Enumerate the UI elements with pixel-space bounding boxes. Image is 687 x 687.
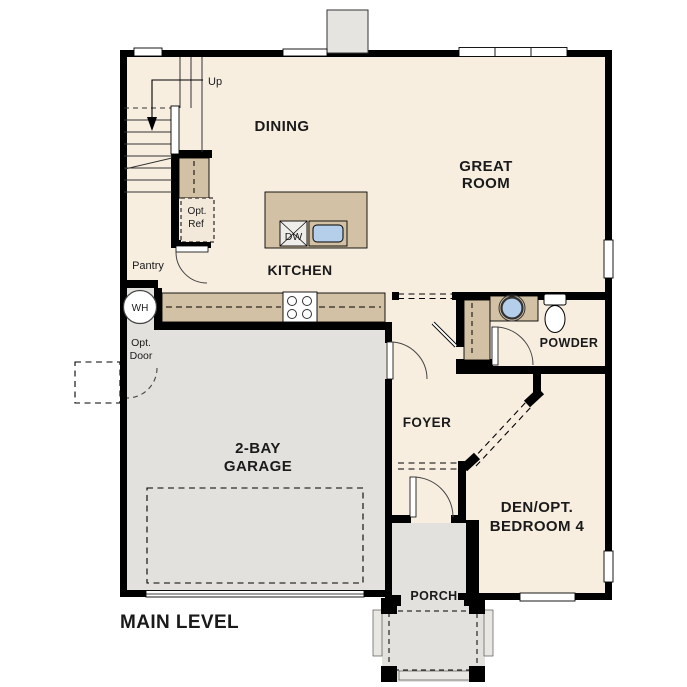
garage-entry-door-leaf	[387, 342, 393, 379]
stove	[283, 292, 317, 322]
porch-post	[469, 598, 485, 614]
den-floor	[460, 370, 610, 598]
label-great-room-2: ROOM	[462, 175, 510, 192]
label-dishwasher: DW	[285, 231, 303, 243]
wall-den-left	[458, 461, 466, 523]
window-dining	[283, 49, 327, 56]
label-opt-ref-2: Ref	[188, 219, 204, 230]
window-top-left	[134, 48, 162, 56]
window-den-right	[604, 551, 613, 582]
label-pantry: Pantry	[132, 260, 164, 272]
porch-step-left	[373, 610, 382, 656]
label-garage-2: GARAGE	[224, 458, 292, 475]
powder-door-leaf	[492, 327, 498, 365]
coat-closet	[464, 300, 490, 360]
fireplace-chimney	[327, 10, 368, 53]
porch-step-bottom	[399, 671, 472, 680]
porch-post	[381, 598, 397, 614]
floorplan-svg: DINING GREAT ROOM KITCHEN Pantry FOYER P…	[0, 0, 687, 687]
wall-garage-right-upper	[385, 326, 392, 343]
toilet-tank	[544, 294, 566, 305]
label-den-1: DEN/OPT.	[501, 499, 573, 516]
toilet-bowl	[545, 306, 565, 333]
label-opt-door-2: Door	[130, 350, 153, 362]
window-den-bottom	[520, 593, 575, 601]
stair-rail	[171, 106, 179, 154]
powder-sink	[502, 298, 523, 319]
label-main-level: MAIN LEVEL	[120, 612, 239, 633]
label-den-2: BEDROOM 4	[490, 518, 585, 535]
wall-hall-stub	[392, 292, 399, 300]
label-stairs-up: Up	[208, 76, 222, 88]
porch-step-right	[484, 610, 493, 656]
kitchen-sink	[313, 225, 343, 242]
front-door-leaf	[410, 477, 416, 517]
pantry-door-leaf	[176, 246, 208, 252]
label-garage-1: 2-BAY	[235, 440, 281, 457]
wall-kitchen-south	[154, 322, 392, 330]
wall-stair-cabinet	[171, 152, 179, 248]
label-foyer: FOYER	[403, 415, 452, 430]
wall-garage-right-lower	[385, 379, 392, 597]
optional-door-stoop	[75, 362, 120, 403]
label-great-room-1: GREAT	[459, 158, 512, 175]
wall-pantry-bottom	[120, 280, 158, 288]
wall-front-left	[385, 515, 411, 523]
wall-closet-left	[456, 294, 464, 347]
label-water-heater: WH	[132, 303, 149, 314]
label-opt-ref-1: Opt.	[188, 206, 207, 217]
label-opt-door-1: Opt.	[131, 337, 151, 349]
wall-porch-right	[466, 520, 479, 600]
label-powder: POWDER	[540, 336, 599, 350]
label-kitchen: KITCHEN	[267, 262, 332, 278]
floorplan-main-level: DINING GREAT ROOM KITCHEN Pantry FOYER P…	[0, 0, 687, 687]
label-dining: DINING	[255, 118, 310, 135]
label-porch: PORCH	[410, 589, 457, 603]
window-great-room-top	[459, 48, 567, 57]
window-great-room-right	[604, 240, 613, 278]
wall-right	[605, 50, 612, 600]
